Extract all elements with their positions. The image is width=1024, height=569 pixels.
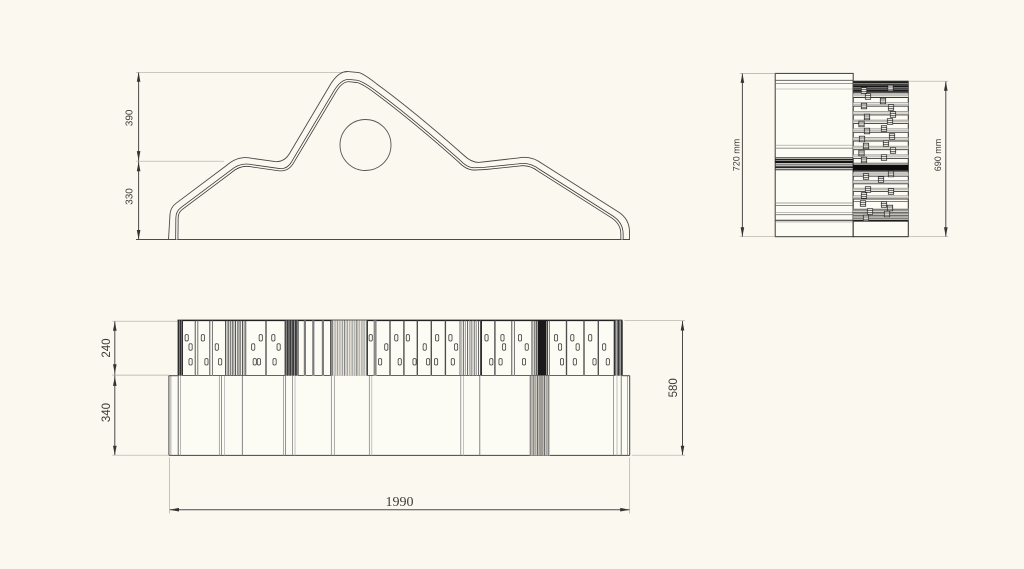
svg-text:720 mm: 720 mm <box>732 139 742 172</box>
svg-text:390: 390 <box>124 109 135 126</box>
svg-text:580: 580 <box>668 378 680 397</box>
svg-text:690 mm: 690 mm <box>933 139 943 172</box>
svg-text:330: 330 <box>124 188 135 205</box>
svg-text:1990: 1990 <box>386 495 414 510</box>
svg-text:240: 240 <box>101 338 113 357</box>
svg-text:340: 340 <box>101 403 113 422</box>
